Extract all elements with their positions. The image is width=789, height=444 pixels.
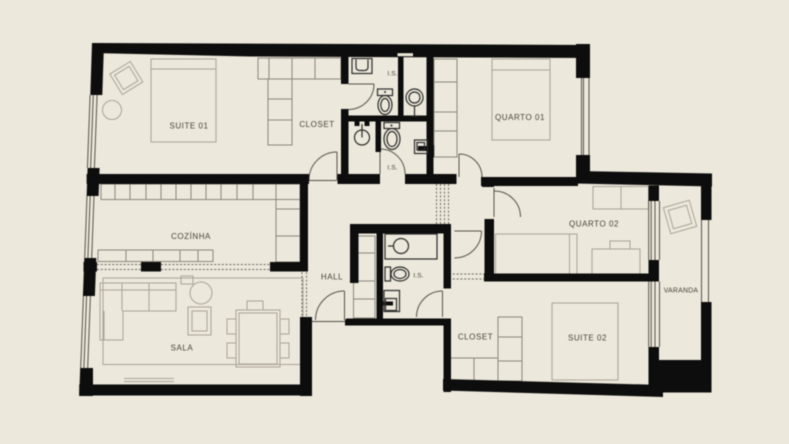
svg-text:I.S.: I.S. xyxy=(387,71,397,78)
svg-text:HALL: HALL xyxy=(321,273,343,282)
svg-text:CLOSET: CLOSET xyxy=(458,333,493,342)
svg-text:QUARTO 01: QUARTO 01 xyxy=(495,113,545,122)
svg-text:I.S.: I.S. xyxy=(387,165,397,172)
svg-text:CLOSET: CLOSET xyxy=(299,120,334,129)
svg-text:SALA: SALA xyxy=(171,344,194,353)
svg-text:SUITE 02: SUITE 02 xyxy=(568,334,607,343)
svg-text:VARANDA: VARANDA xyxy=(664,288,699,295)
svg-text:I.S.: I.S. xyxy=(413,273,423,280)
svg-text:QUARTO 02: QUARTO 02 xyxy=(569,220,619,229)
svg-text:SUITE 01: SUITE 01 xyxy=(169,122,208,131)
svg-text:COZÍNHA: COZÍNHA xyxy=(171,232,211,241)
